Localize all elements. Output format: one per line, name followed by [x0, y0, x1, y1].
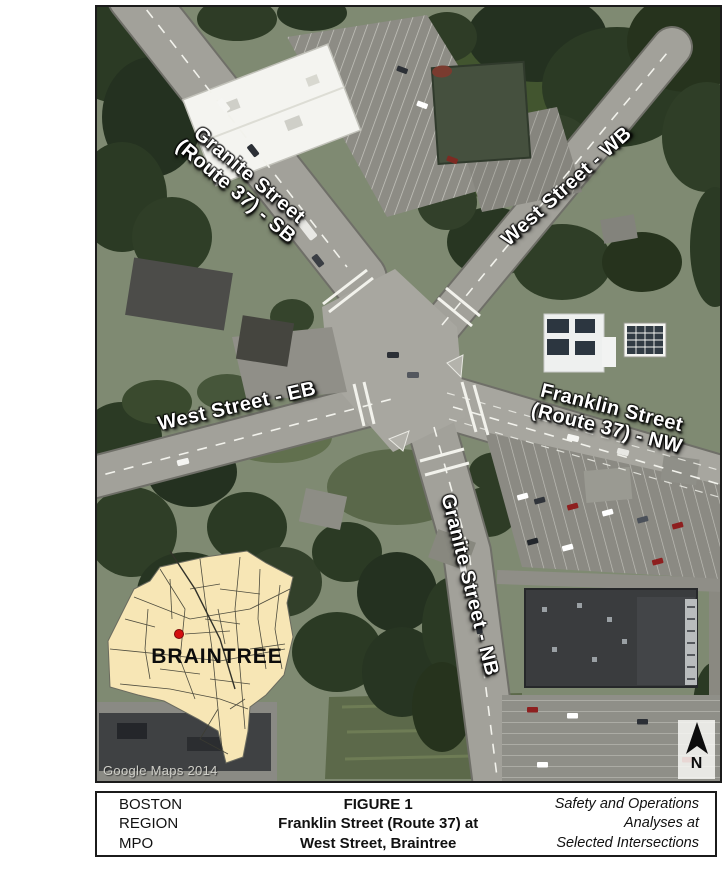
agency-line: MPO [119, 834, 245, 854]
figure-page: Granite Street (Route 37) - SB West Stre… [0, 0, 727, 872]
location-marker-dot [175, 630, 184, 639]
map-attribution: Google Maps 2014 [103, 763, 218, 778]
agency-line: REGION [119, 814, 245, 834]
project-line: Analyses at [511, 814, 699, 833]
figure-title: FIGURE 1 Franklin Street (Route 37) at W… [245, 795, 511, 854]
north-arrow: N [678, 720, 715, 779]
figure-number: FIGURE 1 [245, 795, 511, 815]
inset-town-name: BRAINTREE [151, 645, 283, 669]
north-arrow-icon [682, 720, 712, 758]
agency-name: BOSTON REGION MPO [97, 795, 245, 854]
project-name: Safety and Operations Analyses at Select… [511, 795, 715, 852]
project-line: Selected Intersections [511, 834, 699, 853]
aerial-map-frame: Granite Street (Route 37) - SB West Stre… [95, 5, 722, 783]
figure-title-line: West Street, Braintree [245, 834, 511, 854]
title-block: BOSTON REGION MPO FIGURE 1 Franklin Stre… [95, 791, 717, 857]
north-arrow-label: N [691, 756, 703, 772]
agency-line: BOSTON [119, 795, 245, 815]
project-line: Safety and Operations [511, 795, 699, 814]
figure-title-line: Franklin Street (Route 37) at [245, 814, 511, 834]
